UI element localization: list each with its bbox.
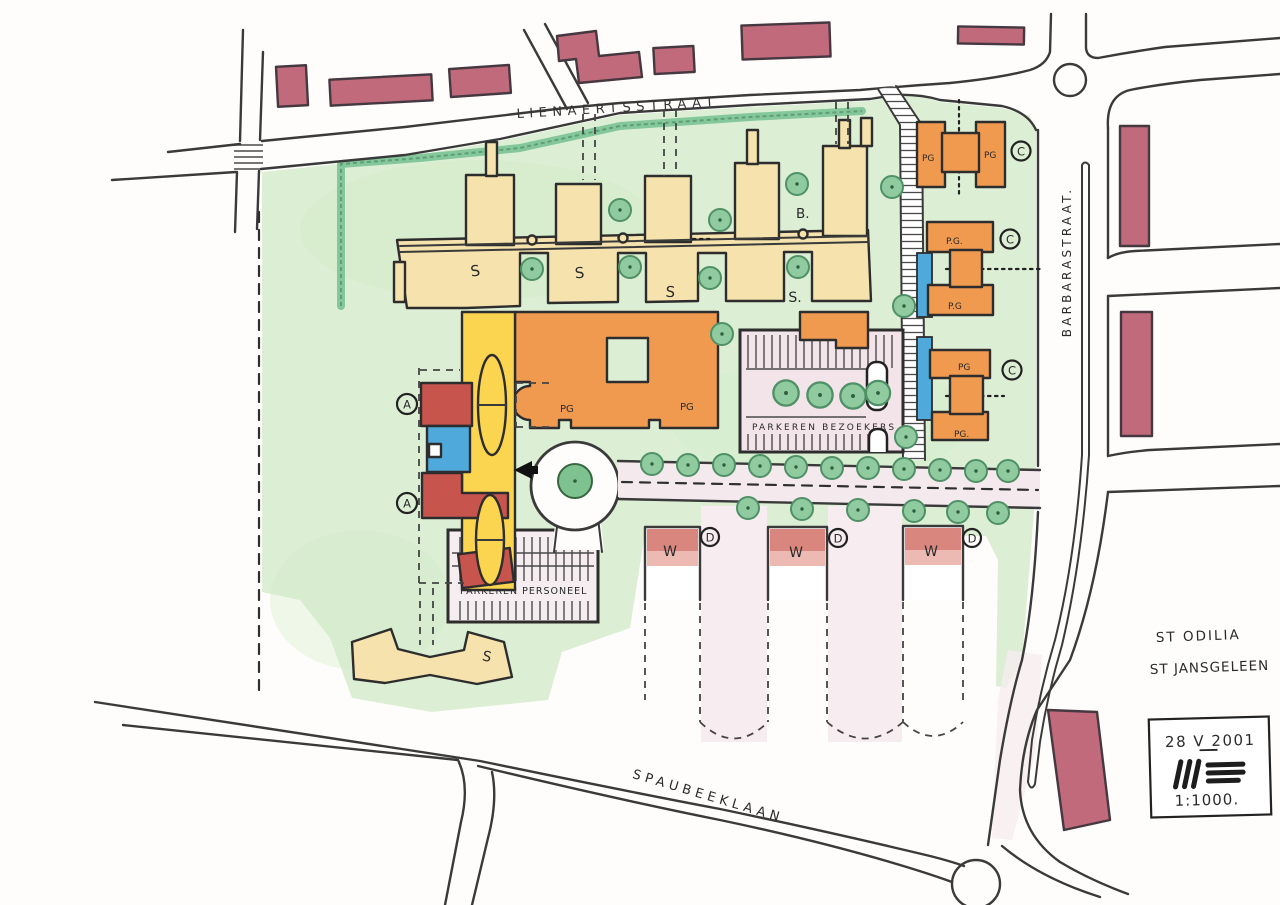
wing-label-s4: S. <box>788 290 801 306</box>
existing-building-stepped <box>557 31 642 83</box>
district-st-odilia: ST ODILIA <box>1156 627 1241 646</box>
pg-house-3-label-b: PG. <box>954 430 969 440</box>
existing-building <box>1121 312 1152 436</box>
wing-1 <box>466 175 514 245</box>
existing-building <box>1120 126 1149 246</box>
side-street-1 <box>1108 244 1280 296</box>
existing-building <box>741 22 830 59</box>
w-dwelling-2 <box>768 527 827 600</box>
stamp: 28 V 2001 1:1000. <box>1149 716 1272 817</box>
pg-house-2-label-a: P.G. <box>946 237 963 247</box>
existing-building-tilted <box>1048 710 1110 830</box>
svg-text:A: A <box>403 398 411 412</box>
b-block-label: B. <box>796 206 810 222</box>
district-st-jansgeleen: ST JANSGELEEN <box>1150 658 1270 678</box>
stamp-scale: 1:1000. <box>1174 790 1239 810</box>
spine-west-tab <box>394 262 405 302</box>
crosswalk <box>234 145 263 169</box>
svg-text:D: D <box>834 532 843 546</box>
stamp-date: 28 V 2001 <box>1165 731 1256 751</box>
wing-5 <box>823 146 867 236</box>
north-roundabout <box>1054 64 1086 96</box>
w-dwellings <box>645 526 963 739</box>
svg-text:D: D <box>968 532 977 546</box>
wing-3 <box>645 176 691 242</box>
pg-house-3-label-a: PG <box>958 363 970 373</box>
wing-label-s2: S <box>574 264 585 283</box>
w-future-extension-dashed <box>645 602 963 739</box>
site-plan-sketch: PARKEREN PERSONEEL PARKEREN BEZOEKERS. <box>0 0 1280 905</box>
wing-1-stem <box>486 142 497 176</box>
wing-4 <box>735 163 779 239</box>
existing-building <box>449 65 511 97</box>
pg-house-1-label-b: PG <box>984 151 996 161</box>
wing-4-stem <box>747 130 758 164</box>
svg-text:D: D <box>706 531 715 545</box>
svg-text:C: C <box>1006 233 1014 247</box>
street-name-barbarastraat: BARBARASTRAAT. <box>1060 187 1074 337</box>
pg-house-1-link <box>942 133 979 172</box>
pg-house-1-label-a: PG <box>922 154 934 164</box>
svg-text:C: C <box>1008 364 1016 378</box>
w-unit-label-1: W <box>663 544 677 560</box>
existing-building <box>653 46 694 74</box>
wing-label-s3: S <box>665 283 676 302</box>
w-unit-label-2: W <box>789 545 803 561</box>
pg-main-label-2: PG <box>680 402 694 413</box>
existing-building <box>958 26 1024 44</box>
north-west-street <box>235 30 263 232</box>
south-roundabout <box>952 860 1000 905</box>
side-street-2 <box>1108 444 1280 492</box>
existing-building <box>329 74 432 105</box>
wing-2 <box>556 184 601 244</box>
pg-house-2-label-b: P.G <box>948 302 962 312</box>
pg-main-label-1: PG <box>560 404 574 415</box>
parking-visitors-label: PARKEREN BEZOEKERS. <box>752 423 901 433</box>
wing-5-stem-b <box>861 118 872 146</box>
w-dwelling-1 <box>645 527 700 600</box>
zone-marker-d3: D <box>963 529 981 547</box>
pg-house-3-link <box>950 376 983 414</box>
site-plan-drawing: PARKEREN PERSONEEL PARKEREN BEZOEKERS. <box>0 0 1280 905</box>
existing-building <box>276 65 308 107</box>
north-road <box>1086 14 1280 58</box>
blue-block-entry <box>429 444 441 457</box>
pg-house-2-link <box>950 250 982 287</box>
w-unit-label-3: W <box>924 544 938 560</box>
east-road <box>1108 74 1280 128</box>
red-block-north <box>421 383 472 426</box>
svg-text:C: C <box>1017 145 1025 159</box>
svg-text:A: A <box>403 497 411 511</box>
w-dwelling-3 <box>903 526 963 600</box>
